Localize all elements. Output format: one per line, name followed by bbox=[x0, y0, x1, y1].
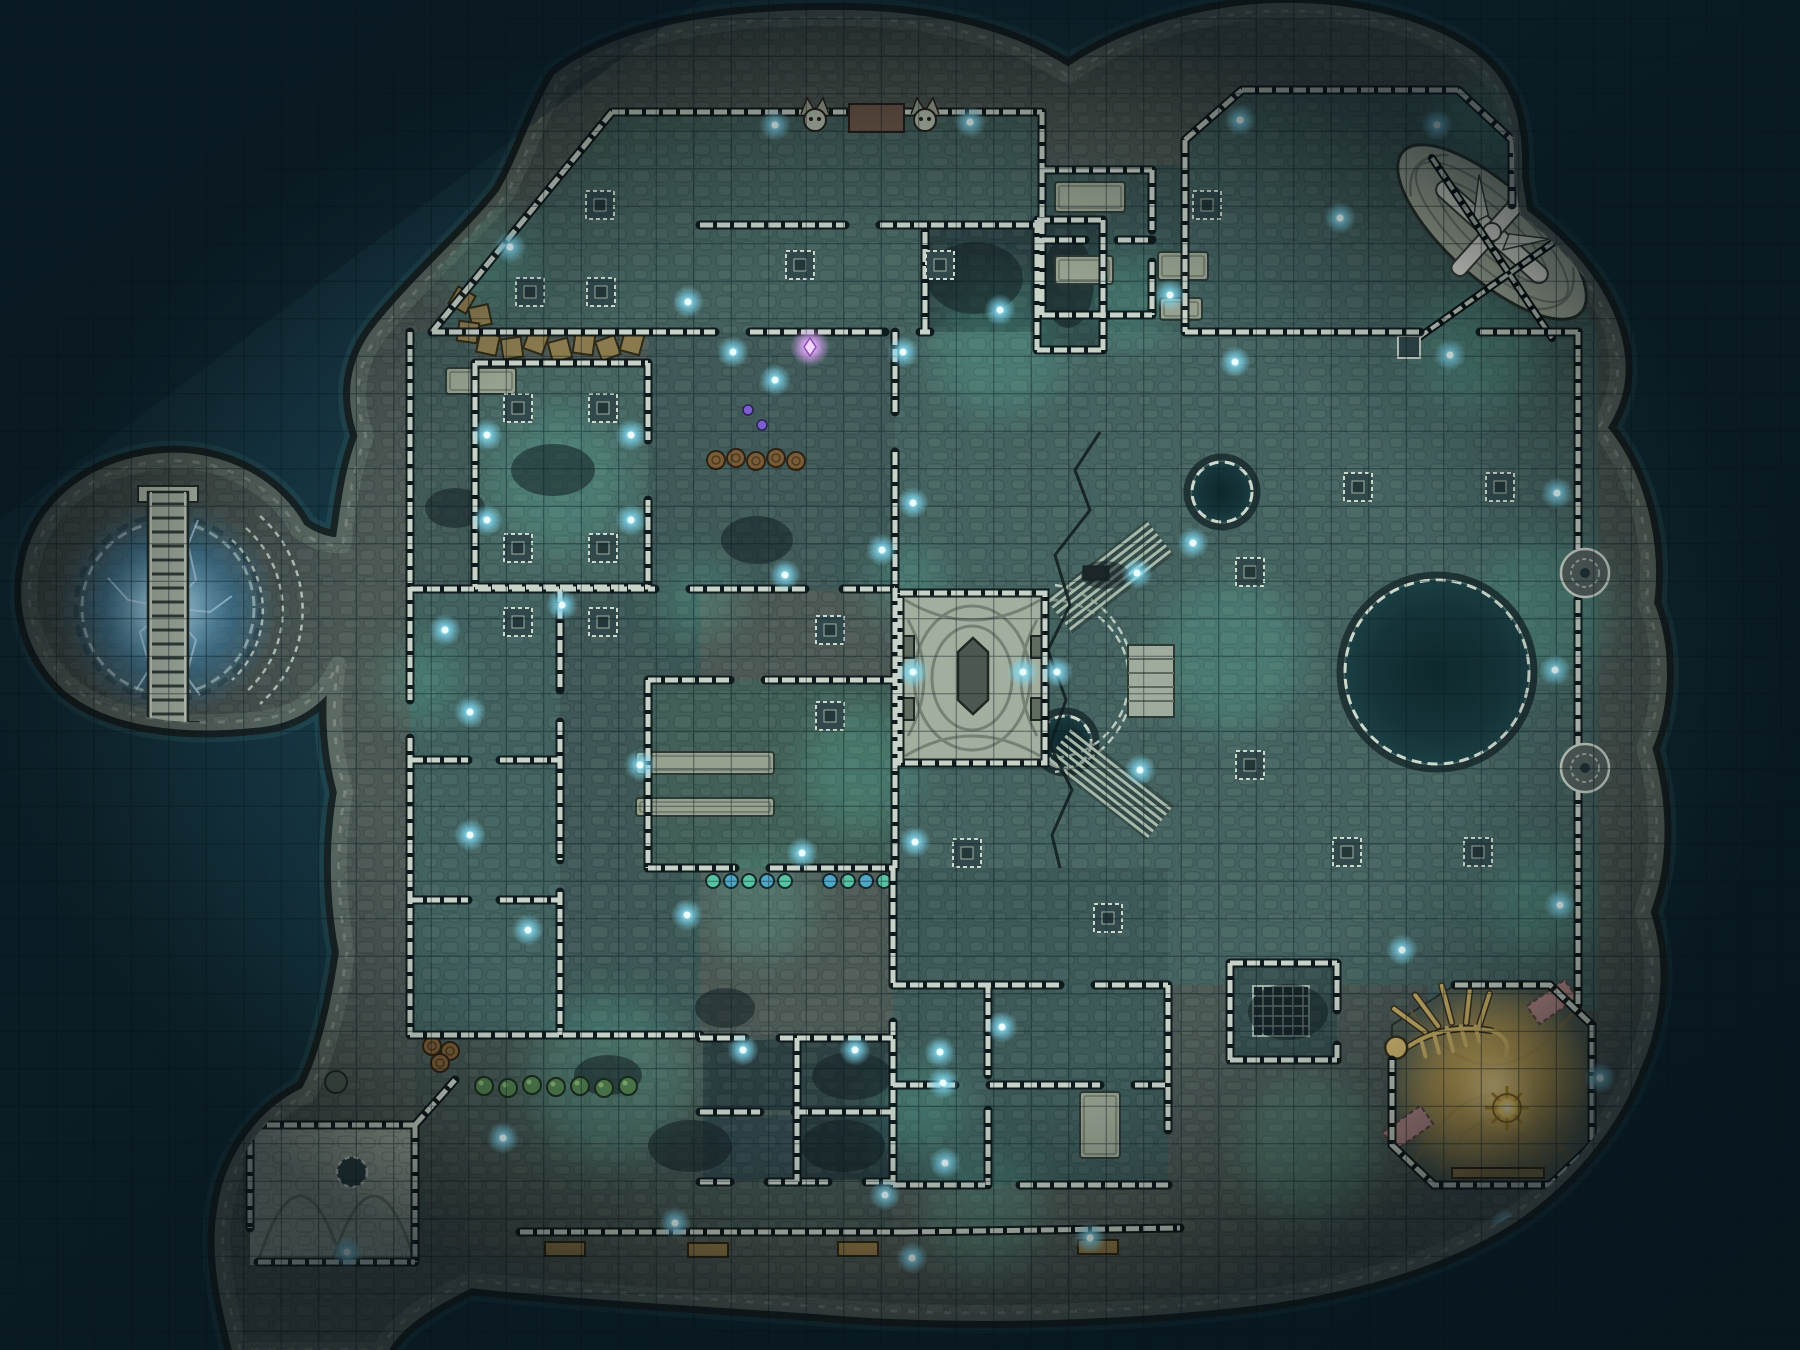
battle-map-sunken-temple[interactable] bbox=[0, 0, 1800, 1350]
map-canvas[interactable] bbox=[0, 0, 1800, 1350]
vignette bbox=[0, 0, 1800, 1350]
